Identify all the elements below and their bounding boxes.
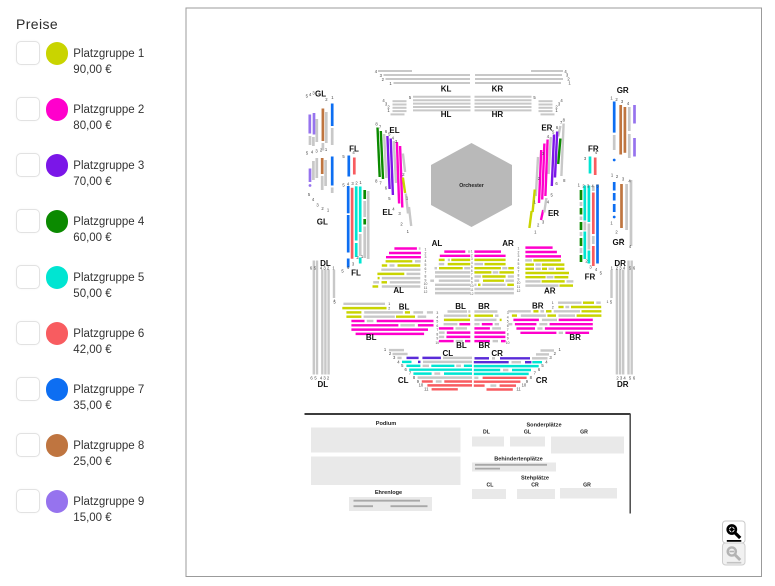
- svg-text:BR: BR: [479, 341, 491, 350]
- svg-text:AR: AR: [544, 286, 556, 295]
- svg-text:GR: GR: [617, 86, 629, 95]
- svg-text:FL: FL: [351, 269, 361, 278]
- svg-text:BR: BR: [478, 302, 490, 311]
- svg-text:CR: CR: [536, 376, 548, 385]
- svg-text:ER: ER: [541, 123, 552, 132]
- svg-text:11: 11: [424, 387, 429, 392]
- svg-text:HR: HR: [492, 110, 504, 119]
- svg-text:2: 2: [388, 307, 390, 311]
- svg-text:10: 10: [522, 382, 527, 387]
- svg-text:12: 12: [517, 289, 521, 293]
- svg-text:EL: EL: [389, 126, 399, 135]
- svg-text:BL: BL: [456, 341, 467, 350]
- svg-text:DL: DL: [317, 380, 328, 389]
- svg-text:1: 1: [607, 300, 609, 304]
- svg-text:CL: CL: [487, 483, 495, 489]
- svg-text:CL: CL: [442, 349, 453, 358]
- svg-text:DL: DL: [320, 259, 331, 268]
- svg-text:KR: KR: [492, 85, 504, 94]
- svg-text:1: 1: [334, 299, 336, 303]
- svg-text:AL: AL: [393, 286, 404, 295]
- svg-text:EL: EL: [382, 208, 392, 217]
- svg-text:GR: GR: [580, 430, 588, 436]
- svg-text:BR: BR: [532, 302, 544, 311]
- svg-text:FR: FR: [588, 144, 599, 153]
- svg-text:GR: GR: [613, 238, 625, 247]
- svg-text:CL: CL: [398, 376, 409, 385]
- svg-text:DL: DL: [483, 430, 491, 436]
- svg-text:CR: CR: [491, 349, 503, 358]
- svg-text:KL: KL: [441, 85, 452, 94]
- svg-text:12: 12: [424, 290, 428, 294]
- svg-text:Orchester: Orchester: [459, 183, 484, 189]
- svg-text:Stehplätze: Stehplätze: [521, 476, 549, 482]
- svg-text:HL: HL: [441, 110, 452, 119]
- svg-text:GL: GL: [524, 430, 532, 436]
- svg-text:GL: GL: [317, 217, 328, 226]
- svg-text:FR: FR: [585, 273, 596, 282]
- svg-text:12: 12: [470, 292, 474, 296]
- svg-text:DR: DR: [614, 259, 626, 268]
- svg-text:2: 2: [552, 306, 554, 310]
- svg-text:GR: GR: [583, 483, 591, 489]
- svg-text:BL: BL: [366, 333, 377, 342]
- svg-text:FL: FL: [349, 145, 359, 154]
- svg-text:BL: BL: [455, 302, 466, 311]
- svg-text:Behindertenplätze: Behindertenplätze: [494, 457, 543, 463]
- svg-text:10: 10: [435, 341, 439, 345]
- svg-text:1: 1: [388, 302, 390, 306]
- svg-text:10: 10: [419, 382, 424, 387]
- svg-text:DR: DR: [617, 380, 629, 389]
- svg-text:GL: GL: [315, 90, 326, 99]
- svg-text:Sonderplätze: Sonderplätze: [526, 423, 561, 429]
- svg-text:AR: AR: [502, 239, 514, 248]
- svg-text:Podium: Podium: [376, 421, 397, 427]
- svg-text:Ehrenloge: Ehrenloge: [375, 490, 402, 496]
- svg-text:AL: AL: [432, 239, 443, 248]
- svg-text:BR: BR: [569, 333, 581, 342]
- svg-text:ER: ER: [548, 209, 559, 218]
- svg-text:CR: CR: [531, 483, 539, 489]
- svg-text:10: 10: [506, 341, 510, 345]
- svg-text:BL: BL: [399, 302, 410, 311]
- svg-text:11: 11: [516, 387, 521, 392]
